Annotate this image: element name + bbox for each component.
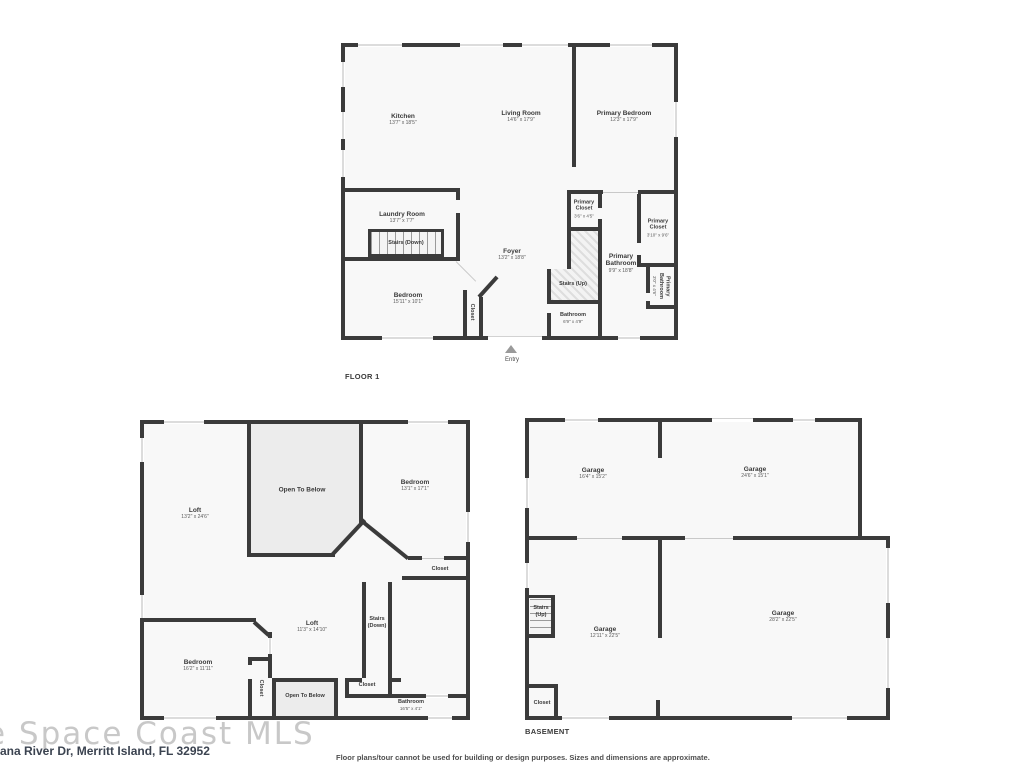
room-label-bathroom: Bathroom 16'5" x 4'1" (398, 699, 424, 711)
window (792, 716, 847, 720)
floor-area (525, 418, 862, 720)
wall (638, 190, 674, 194)
wall (144, 618, 256, 622)
window (886, 548, 890, 603)
wall (345, 257, 460, 261)
wall (402, 576, 466, 580)
room-label-kitchen: Kitchen 13'7" x 18'5" (389, 113, 416, 127)
window (341, 62, 345, 87)
wall (247, 553, 335, 557)
room-label-closet: Closet (469, 304, 475, 321)
wall (408, 556, 422, 560)
room-label-garage-3: Garage 12'11" x 22'5" (590, 626, 620, 640)
floor1-title: FLOOR 1 (345, 372, 380, 381)
room-label-bedroom: Bedroom 15'11" x 10'1" (393, 292, 423, 306)
room-label-garage-2: Garage 24'6" x 15'1" (741, 466, 768, 480)
window (565, 418, 598, 422)
room-label-stairs-down: Stairs (Down) (368, 616, 387, 630)
room-label-closet-mid: Closet (359, 682, 376, 688)
floor-plan-page: Kitchen 13'7" x 18'5" Living Room 14'6" … (0, 0, 1024, 768)
window (562, 716, 609, 720)
window (341, 112, 345, 139)
room-label-stairs-up: Stairs (Up) (533, 605, 548, 619)
wall (547, 313, 551, 336)
wall (444, 556, 466, 560)
wall (658, 422, 662, 458)
room-label-open-to-below-small: Open To Below (285, 693, 325, 699)
window (164, 420, 204, 424)
wall (622, 536, 685, 540)
wall (345, 188, 460, 192)
window (428, 716, 452, 720)
window (426, 694, 448, 698)
room-label-stairs-up: Stairs (Up) (559, 281, 587, 287)
window (886, 638, 890, 688)
room-label-primary-closet: Primary Closet 3'6" x 4'5" (568, 200, 600, 219)
room-label-bedroom-lower: Bedroom 16'2" x 11'11" (183, 659, 212, 673)
wall (359, 424, 363, 524)
room-label-garage-1: Garage 16'4" x 15'2" (579, 467, 606, 481)
entry-arrow-icon (505, 345, 517, 353)
stairs-hatch (571, 231, 598, 269)
wall (733, 536, 858, 540)
property-address: ana River Dr, Merritt Island, FL 32952 (0, 744, 210, 758)
wall (598, 231, 602, 336)
window (610, 43, 652, 47)
wall (345, 694, 426, 698)
wall (572, 47, 576, 167)
window (674, 102, 678, 137)
window (140, 438, 144, 462)
window (522, 43, 568, 47)
basement-plan: Garage 16'4" x 15'2" Garage 24'6" x 15'1… (525, 418, 890, 720)
door-swing-line (456, 261, 477, 282)
room-label-primary-bathroom: Primary Bathroom 9'9" x 18'8" (599, 253, 643, 275)
wall (658, 536, 662, 638)
room-label-living-room: Living Room 14'6" x 17'9" (501, 110, 540, 124)
window (525, 478, 529, 508)
window (140, 595, 144, 618)
door-opening (685, 538, 733, 539)
wall (646, 267, 650, 293)
wall (529, 634, 555, 638)
window (460, 43, 503, 47)
wall (656, 700, 660, 716)
wall (463, 290, 467, 336)
room-label-laundry-room: Laundry Room 13'7" x 7'7" (379, 211, 425, 225)
disclaimer-text: Floor plans/tour cannot be used for buil… (336, 753, 710, 762)
window (382, 336, 433, 340)
wall (248, 657, 252, 665)
door-opening (422, 558, 444, 559)
room-label-closet-upper: Closet (432, 566, 449, 572)
wall (479, 297, 483, 336)
door-opening (577, 538, 622, 539)
wall-diagonal (478, 276, 499, 299)
room-label-closet: Closet (534, 700, 551, 706)
room-label-foyer: Foyer 13'2" x 18'8" (498, 248, 525, 262)
wall (547, 269, 551, 300)
room-label-primary-bedroom: Primary Bedroom 12'3" x 17'9" (597, 110, 652, 124)
room-label-primary-bathroom-small: Primary Bathroom 3'0" x 4'6" (652, 266, 671, 306)
room-label-garage-4: Garage 28'2" x 22'5" (769, 610, 796, 624)
wall (637, 194, 641, 243)
wall (247, 424, 251, 557)
room-label-loft-small: Loft 11'3" x 14'10" (297, 620, 327, 634)
wall (547, 300, 602, 304)
entry-door-opening (488, 336, 542, 340)
wall (456, 188, 460, 200)
wall (248, 679, 252, 716)
door-opening (603, 192, 638, 193)
room-label-closet-left: Closet (258, 680, 264, 697)
wall (388, 678, 392, 694)
room-label-stairs-down: Stairs (Down) (388, 240, 423, 246)
window (408, 420, 448, 424)
room-label-loft: Loft 13'2" x 24'6" (181, 507, 208, 521)
floor1-plan: Kitchen 13'7" x 18'5" Living Room 14'6" … (341, 43, 678, 340)
window (793, 418, 815, 422)
wall (858, 418, 862, 540)
window (525, 563, 529, 588)
wall (529, 536, 577, 540)
window (618, 336, 640, 340)
basement-title: BASEMENT (525, 727, 570, 736)
room-label-primary-closet-2: Primary Closet 3'10" x 9'6" (643, 219, 673, 238)
wall (362, 582, 366, 678)
entry-label: Entry (505, 357, 519, 363)
room-label-open-to-below: Open To Below (279, 486, 326, 493)
wall-diagonal (362, 520, 410, 560)
wall (551, 595, 555, 638)
wall (456, 213, 460, 257)
garage-door-opening (712, 418, 753, 422)
floor2-plan: Loft 13'2" x 24'6" Open To Below Bedroom… (140, 420, 470, 720)
wall (448, 694, 466, 698)
room-label-bedroom-upper: Bedroom 13'1" x 17'1" (401, 479, 430, 493)
window (268, 638, 272, 654)
window (466, 512, 470, 542)
wall (554, 684, 558, 720)
room-label-bathroom: Bathroom 6'9" x 4'9" (560, 312, 586, 324)
wall (388, 582, 392, 678)
window (358, 43, 402, 47)
window (341, 150, 345, 177)
